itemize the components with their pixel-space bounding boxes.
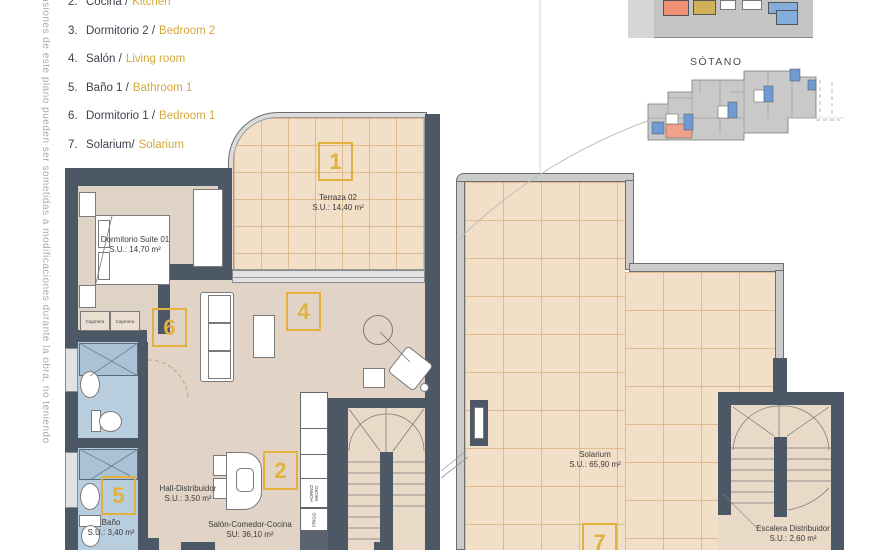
overview-room-salmon <box>663 0 689 16</box>
oven-label: HORNO <box>309 485 314 502</box>
island-stool-1 <box>213 455 227 476</box>
wall-escalera-top <box>718 392 844 405</box>
left-wall-window-1 <box>65 348 78 392</box>
solarium-label: SolariumS.U.: 65,90 m² <box>569 450 621 471</box>
solarium-escalera-link <box>773 358 787 392</box>
legend-item-solarium: 7. Solarium/ Solarium <box>68 139 215 151</box>
tag-solarium: 7 <box>582 523 617 550</box>
toilet-1 <box>99 411 122 432</box>
wall-escalera-spine <box>774 437 787 517</box>
fridge-cabinet: FRIGO <box>300 508 328 531</box>
legend-item-salon: 4. Salón / Living room <box>68 53 215 65</box>
sofa-cushion-1 <box>208 295 231 323</box>
wall-stair-left <box>328 398 348 550</box>
tag-bano: 5 <box>101 476 136 515</box>
micro-label: MICRO <box>314 486 319 501</box>
room-legend: 2. Cocina / Kitchen 3. Dormitorio 2 / Be… <box>68 0 215 167</box>
fridge-label: FRIGO <box>311 512 316 526</box>
cajonera-right: Cajonera <box>110 311 140 331</box>
coffee-table <box>253 315 275 358</box>
sotano-title: SÓTANO <box>690 56 743 68</box>
wall-stair-spine <box>380 452 393 550</box>
wall-stub-2 <box>181 542 215 550</box>
sink-2 <box>80 483 100 510</box>
tag-dormitorio: 6 <box>152 308 187 347</box>
solarium-floor-a <box>465 182 625 550</box>
wall-stub-1 <box>147 538 159 550</box>
sofa-cushion-2 <box>208 323 231 351</box>
bano-label: BañoS.U.: 3,40 m² <box>87 518 134 539</box>
legend-item-dormitorio2: 3. Dormitorio 2 / Bedroom 2 <box>68 25 215 37</box>
solarium-chimney-inner <box>474 407 484 439</box>
disclaimer-vertical-text: ensiones de este plano pueden ser someti… <box>40 0 51 444</box>
oven-micro-cabinet: HORNO MICRO <box>300 478 328 508</box>
cajonera-left: Cajonera <box>80 311 110 331</box>
wall-bath-top <box>65 330 147 342</box>
side-table <box>363 368 385 388</box>
legend-item-cocina: 2. Cocina / Kitchen <box>68 0 215 8</box>
tag-salon: 4 <box>286 292 321 331</box>
overview-room-tan <box>693 0 716 15</box>
wall-bath-divider <box>65 438 148 448</box>
solarium-wall-right-a <box>625 180 634 270</box>
sotano-map <box>640 68 870 168</box>
tag-cocina: 2 <box>263 451 298 490</box>
solarium-wall-top-b <box>629 263 784 272</box>
escalera-label: Escalera DistribuidorS.U.: 2,60 m² <box>756 524 830 545</box>
wall-stub-3 <box>374 542 388 550</box>
overview-room-blue2 <box>776 10 798 25</box>
wall-escalera-right <box>831 392 844 550</box>
cooktop <box>300 428 328 455</box>
wall-bedroom-top <box>65 168 232 186</box>
terraza-label: Terraza 02S.U.: 14,40 m² <box>312 193 364 214</box>
tag-terraza: 1 <box>318 142 353 181</box>
legend-item-bano1: 5. Baño 1 / Bathroom 1 <box>68 82 215 94</box>
wall-right <box>425 114 440 550</box>
nightstand-top <box>79 192 96 217</box>
solarium-wall-top-a <box>456 173 634 182</box>
nightstand-bottom <box>79 285 96 308</box>
pillow-2 <box>98 252 110 280</box>
dormitorio-label: Dormitorio Suite 01S.U.: 14,70 m² <box>101 235 169 256</box>
sink-1 <box>80 371 100 398</box>
kitchen-base <box>300 531 328 550</box>
left-wall-window-2 <box>65 452 78 508</box>
legend-item-dormitorio1: 6. Dormitorio 1 / Bedroom 1 <box>68 110 215 122</box>
armchair-foot <box>420 383 429 392</box>
terrace-sliding-door <box>232 270 425 283</box>
wardrobe <box>193 189 223 267</box>
hall-label: Hall-DistribuidorS.U.: 3,50 m² <box>160 484 217 505</box>
wall-escalera-left <box>718 392 731 515</box>
floor-lamp <box>363 315 393 345</box>
island-sink <box>236 468 254 492</box>
sofa-cushion-3 <box>208 351 231 379</box>
solarium-wall-left <box>456 173 465 550</box>
floorplan-sheet: ensiones de este plano pueden ser someti… <box>0 0 870 550</box>
salon-label: Salón-Comedor-CocinaSU: 36,10 m² <box>208 520 292 541</box>
